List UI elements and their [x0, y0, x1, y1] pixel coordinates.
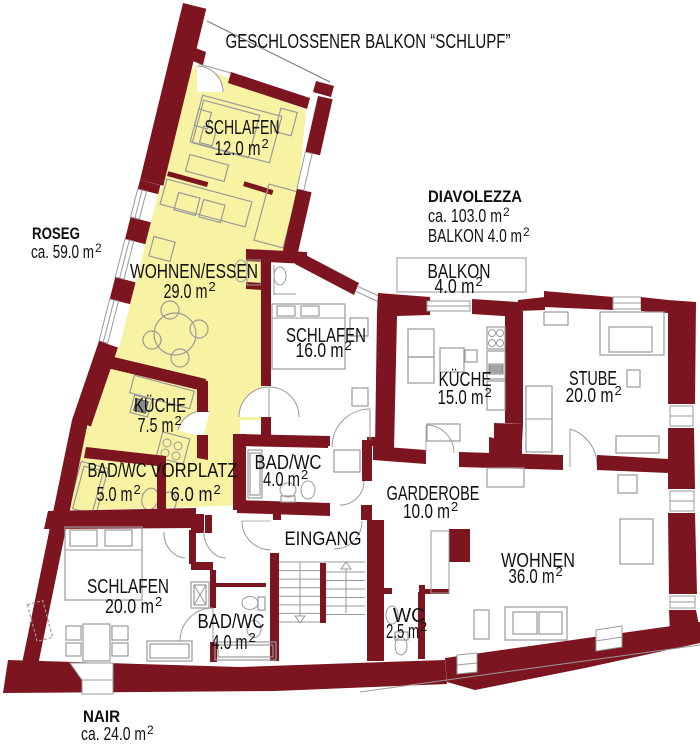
svg-text:2: 2	[485, 385, 492, 400]
svg-text:2: 2	[345, 338, 352, 353]
svg-text:2: 2	[301, 467, 308, 482]
svg-text:12.0 m: 12.0 m	[215, 138, 261, 160]
svg-text:2: 2	[155, 594, 162, 609]
svg-text:BALKON 4.0 m: BALKON 4.0 m	[428, 226, 522, 246]
svg-text:DIAVOLEZZA: DIAVOLEZZA	[428, 187, 522, 206]
svg-text:ca. 103.0 m: ca. 103.0 m	[428, 206, 502, 226]
svg-text:ROSEG: ROSEG	[32, 224, 80, 243]
svg-text:BAD/WC: BAD/WC	[88, 460, 147, 482]
svg-text:WOHNEN/ESSEN: WOHNEN/ESSEN	[130, 261, 258, 283]
svg-text:GESCHLOSSENER BALKON “SCHLUPF”: GESCHLOSSENER BALKON “SCHLUPF”	[226, 31, 511, 53]
svg-text:ca. 24.0 m: ca. 24.0 m	[81, 724, 146, 744]
svg-text:5.0 m: 5.0 m	[97, 484, 133, 506]
svg-text:2: 2	[249, 630, 256, 645]
svg-text:16.0 m: 16.0 m	[296, 340, 344, 362]
svg-text:29.0 m: 29.0 m	[164, 281, 208, 303]
svg-text:EINGANG: EINGANG	[285, 529, 362, 550]
svg-text:2: 2	[147, 723, 154, 737]
svg-text:2: 2	[523, 225, 530, 239]
svg-text:2: 2	[615, 383, 622, 398]
svg-text:2: 2	[476, 274, 483, 289]
svg-text:2: 2	[95, 241, 102, 255]
svg-text:2: 2	[262, 136, 269, 151]
svg-text:20.0 m: 20.0 m	[566, 385, 614, 407]
svg-text:20.0 m: 20.0 m	[105, 596, 154, 618]
svg-text:ca. 59.0 m: ca. 59.0 m	[31, 242, 94, 262]
svg-text:2.5 m: 2.5 m	[386, 621, 419, 643]
svg-text:4.0 m: 4.0 m	[435, 276, 475, 298]
svg-text:4.0 m: 4.0 m	[263, 469, 300, 491]
svg-text:2: 2	[214, 482, 221, 497]
svg-text:2: 2	[420, 619, 427, 634]
svg-text:15.0 m: 15.0 m	[438, 387, 484, 409]
svg-text:10.0 m: 10.0 m	[403, 501, 450, 523]
svg-text:2: 2	[451, 499, 458, 514]
svg-text:4.0 m: 4.0 m	[212, 632, 248, 654]
svg-text:36.0 m: 36.0 m	[509, 566, 555, 588]
svg-text:2: 2	[503, 205, 510, 219]
svg-text:2: 2	[134, 482, 141, 497]
svg-text:2: 2	[209, 279, 216, 294]
svg-text:2: 2	[556, 564, 563, 579]
svg-text:VORPLATZ: VORPLATZ	[151, 460, 238, 482]
svg-text:7.5 m: 7.5 m	[138, 415, 174, 437]
svg-text:6.0 m: 6.0 m	[171, 484, 213, 506]
svg-text:2: 2	[175, 413, 182, 428]
